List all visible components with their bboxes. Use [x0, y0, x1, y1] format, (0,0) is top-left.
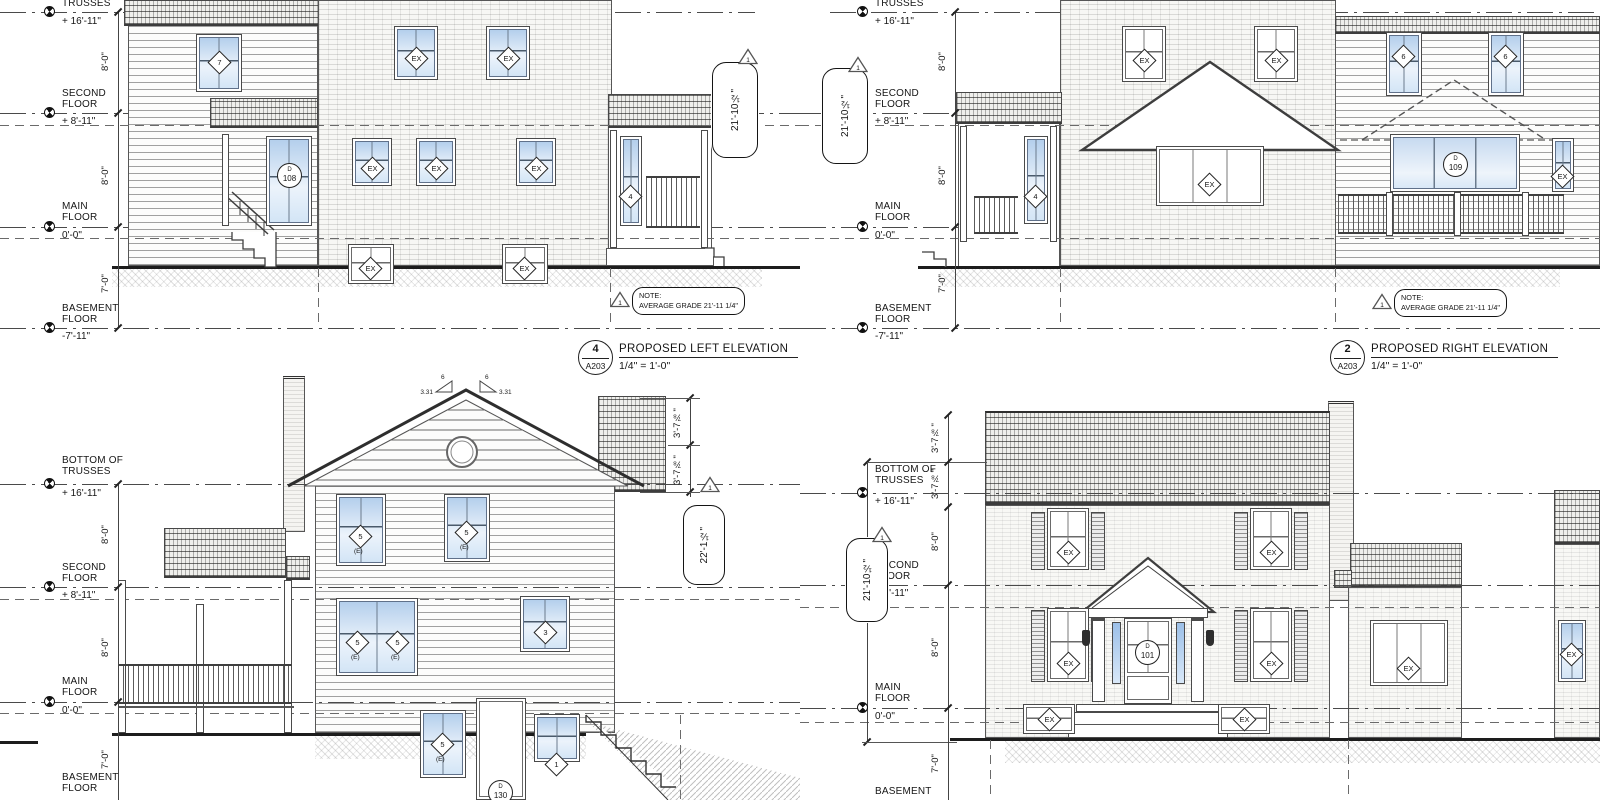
drawing-scale: 1/4" = 1'-0": [1371, 360, 1558, 372]
level-datum-icon: [44, 696, 55, 707]
detail-callout-icon: 2 A203: [1330, 340, 1365, 375]
shutter: [1091, 512, 1105, 570]
level-label-main: MAIN FLOOR: [62, 676, 108, 698]
drawing-scale: 1/4" = 1'-0": [619, 360, 798, 372]
warning-triangle-icon: 1: [1372, 293, 1392, 310]
level-label-trusses: TRUSSES: [62, 0, 124, 9]
level-datum-icon: [857, 322, 868, 333]
drawing-title-right: 2 A203 PROPOSED RIGHT ELEVATION 1/4" = 1…: [1330, 340, 1558, 375]
railing-post: [1454, 192, 1461, 236]
portico-entablature: [1088, 608, 1208, 618]
level-value: + 8'-11": [62, 590, 95, 601]
note-cloud: NOTE: AVERAGE GRADE 21'-11 1/4": [1394, 289, 1507, 317]
level-label-second: SECOND FLOOR: [62, 562, 124, 584]
elevation-drawing-sheet: 8'-0" 8'-0" 7'-0" TRUSSES + 16'-11" SECO…: [0, 0, 1600, 800]
door-tag: D109: [1443, 152, 1468, 177]
porch-window: [620, 136, 642, 226]
stoop-step: [1076, 704, 1220, 712]
revision-cloud-dim: 21'-10½": [822, 68, 868, 164]
shutter: [1031, 512, 1045, 570]
porch-lantern-icon: [1082, 630, 1090, 646]
porch-window: [1024, 136, 1048, 224]
dimension-line: [118, 484, 119, 800]
sheet-number: A203: [579, 359, 612, 373]
note-prefix: NOTE:: [639, 291, 738, 301]
porch-lantern-icon: [1206, 630, 1214, 646]
level-label-basement: BASEMENT FLOOR: [875, 303, 937, 325]
shutter: [1234, 512, 1248, 570]
level-value: + 8'-11": [875, 116, 908, 127]
stoop-line: [1068, 724, 1228, 725]
level-value: + 16'-11": [62, 16, 101, 27]
porch-railing: [118, 664, 292, 704]
dim-text: 3'-7⅞": [672, 449, 683, 491]
level-value: + 8'-11": [62, 116, 95, 127]
revision-triangle-icon: 1: [872, 526, 892, 543]
note-prefix: NOTE:: [1401, 293, 1500, 303]
level-datum-icon: [857, 221, 868, 232]
level-datum-icon: [44, 322, 55, 333]
porch-post: [222, 134, 229, 226]
double-window: [336, 598, 418, 676]
svg-text:6: 6: [441, 374, 445, 381]
sheet-number: A203: [1331, 359, 1364, 373]
stoop-base: [1068, 712, 1228, 738]
dim-text: 8'-0": [100, 32, 111, 92]
note-text: AVERAGE GRADE 21'-11 1/4": [639, 301, 738, 311]
dimension-line: [948, 415, 949, 800]
extension-line: [867, 462, 987, 463]
porch-railing: [974, 196, 1018, 234]
detail-number: 4: [582, 341, 609, 359]
warning-triangle-icon: 1: [610, 291, 630, 308]
shutter: [1294, 610, 1308, 682]
dim-text: 7'-0": [930, 736, 941, 792]
porch-post: [610, 130, 617, 248]
window-tag-existing: (E): [391, 654, 400, 661]
dim-text: 8'-0": [930, 618, 941, 678]
level-label-basement: BASEMENT FLOOR: [62, 772, 124, 794]
porch-railing: [646, 176, 700, 228]
level-value: 0'-0": [875, 230, 895, 241]
dimension-line: [690, 398, 691, 497]
level-label-basement: BASEMENT FLOOR: [62, 303, 124, 325]
level-label-second: SECOND FLOOR: [62, 88, 124, 110]
note-text: AVERAGE GRADE 21'-11 1/4": [1401, 303, 1500, 313]
portico-column: [1092, 618, 1105, 702]
extension-line: [668, 445, 700, 446]
door-tag: D101: [1135, 640, 1160, 665]
porch-deck-line: [118, 706, 294, 708]
porch-post: [701, 130, 708, 248]
level-value: 0'-0": [62, 705, 82, 716]
shutter: [1031, 610, 1045, 682]
level-label-main: MAIN FLOOR: [875, 682, 921, 704]
level-datum-icon: [44, 478, 55, 489]
porch-post: [118, 580, 126, 733]
dim-text: 8'-0": [100, 505, 111, 565]
level-label-second: SECOND FLOOR: [875, 88, 937, 110]
door-sidelight: [1112, 622, 1121, 684]
door-tag: D108: [277, 163, 302, 188]
porch-post: [284, 580, 292, 733]
level-value: + 16'-11": [62, 488, 101, 499]
level-value: + 16'-11": [875, 496, 914, 507]
level-value: -7'-11": [62, 331, 90, 342]
window-tag-existing: (E): [354, 548, 363, 555]
level-value: + 16'-11": [875, 16, 914, 27]
porch-post: [960, 126, 967, 242]
level-value: 0'-0": [62, 230, 82, 241]
door-sidelight: [1176, 622, 1185, 684]
dimension-line: [955, 12, 956, 328]
door-tag: D130: [488, 780, 513, 800]
portico-column: [1191, 618, 1204, 702]
porch-post: [1050, 126, 1057, 242]
level-label-trusses: TRUSSES: [875, 0, 937, 9]
dim-text: 3'-7⅞": [672, 402, 683, 444]
drawing-title: PROPOSED RIGHT ELEVATION: [1371, 340, 1558, 358]
shutter: [1294, 512, 1308, 570]
railing-post: [1522, 192, 1529, 236]
dim-text: 8'-0": [100, 146, 111, 206]
drawing-title-left: 4 A203 PROPOSED LEFT ELEVATION 1/4" = 1'…: [578, 340, 798, 375]
level-datum-icon: [857, 6, 868, 17]
level-value: 0'-0": [875, 711, 895, 722]
dim-text: 8'-0": [937, 32, 948, 92]
level-label-bottom-of-trusses: BOTTOM OF TRUSSES: [875, 464, 937, 486]
detail-number: 2: [1334, 341, 1361, 359]
extension-line: [640, 492, 700, 493]
revision-cloud-dim: 21'-10½": [712, 62, 758, 158]
dim-text: 8'-0": [100, 618, 111, 678]
revision-cloud-dim: 22'-1½": [683, 505, 725, 585]
extension-line: [862, 742, 957, 743]
svg-text:6: 6: [485, 374, 489, 381]
detail-callout-icon: 4 A203: [578, 340, 613, 375]
drawing-title: PROPOSED LEFT ELEVATION: [619, 340, 798, 358]
level-datum-icon: [857, 487, 868, 498]
level-datum-icon: [44, 6, 55, 17]
revision-triangle-icon: 1: [848, 56, 868, 73]
level-label-main: MAIN FLOOR: [62, 201, 108, 223]
window-tag-existing: (E): [460, 544, 469, 551]
svg-text:3.31: 3.31: [499, 389, 512, 396]
level-datum-icon: [44, 221, 55, 232]
level-datum-icon: [44, 107, 55, 118]
window-tag-existing: (E): [351, 654, 360, 661]
dim-text: 3'-7⅞": [930, 417, 941, 459]
note-cloud: NOTE: AVERAGE GRADE 21'-11 1/4": [632, 287, 745, 315]
porch-railing: [1338, 194, 1564, 234]
revision-triangle-icon: 1: [738, 48, 758, 65]
level-label-basement: BASEMENT: [875, 786, 937, 797]
revision-triangle-icon: 1: [700, 476, 720, 493]
revision-cloud-dim: 21'-10½": [846, 538, 888, 622]
window-tag-existing: (E): [436, 756, 445, 763]
porch-roof-shingles: [210, 98, 318, 128]
extension-line: [640, 398, 700, 399]
dim-text: 8'-0": [937, 146, 948, 206]
svg-text:3.31: 3.31: [420, 389, 433, 396]
dim-text: 7'-0": [937, 256, 948, 312]
level-label-bottom-of-trusses: BOTTOM OF TRUSSES: [62, 455, 124, 477]
level-datum-icon: [44, 581, 55, 592]
level-datum-icon: [857, 702, 868, 713]
level-label-main: MAIN FLOOR: [875, 201, 921, 223]
shutter: [1234, 610, 1248, 682]
dimension-line: [118, 12, 119, 328]
railing-post: [1386, 192, 1393, 236]
level-value: -7'-11": [875, 331, 903, 342]
